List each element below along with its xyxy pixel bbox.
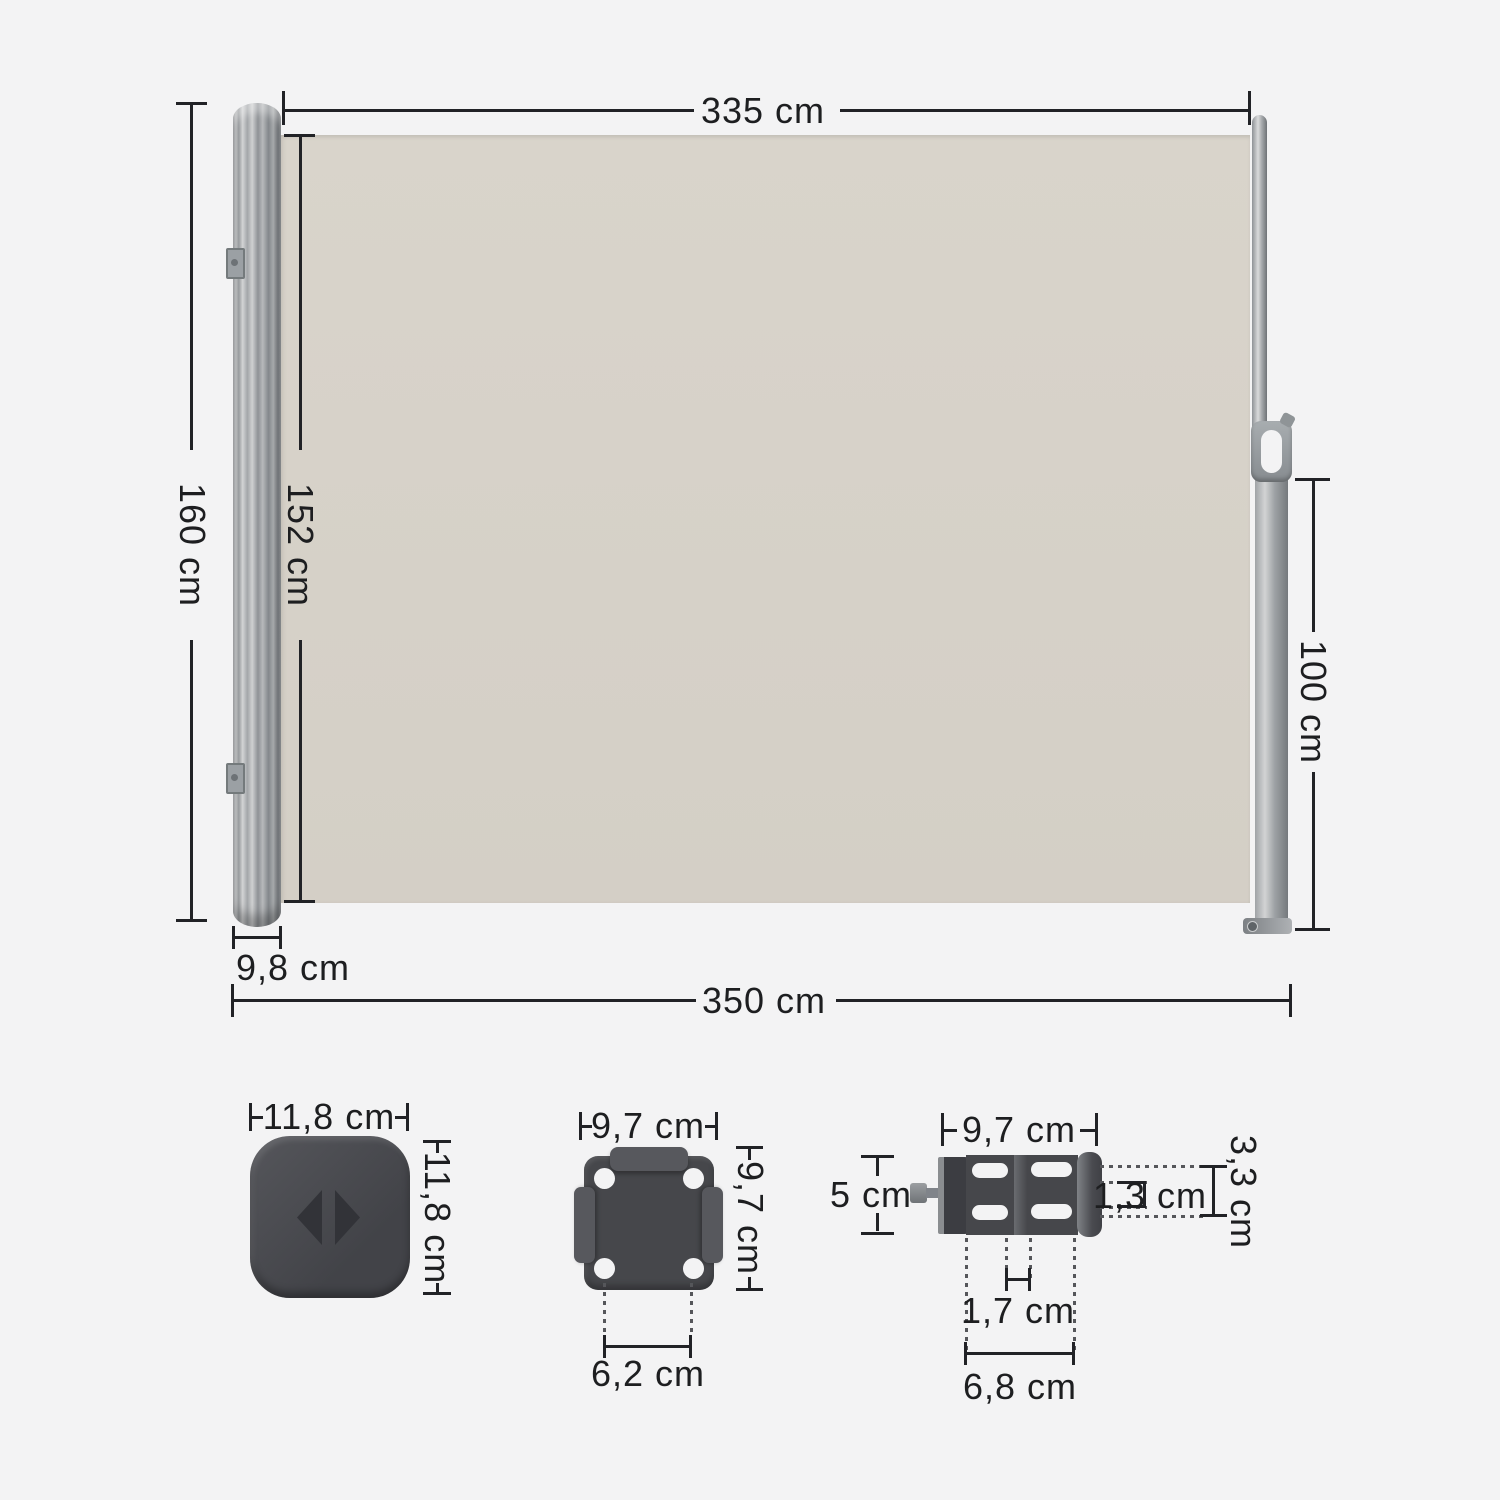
end-cap [250,1136,410,1298]
dim-bracket-width-label: 9,7 cm [962,1112,1076,1148]
dim-plate-width-label: 9,7 cm [591,1108,705,1144]
dim-hole-spacing-dotted-right [690,1283,693,1337]
dim-hole-spacing-line [604,1345,692,1348]
main-awning-diagram: 335 cm 160 cm 152 cm 100 cm 9,8 cm 350 c… [0,0,1500,1050]
dim-cassette-depth-tick-left [232,926,235,949]
dim-fabric-width-line-right [840,109,1250,112]
dim-outer-span-line [966,1352,1075,1355]
dim-bracket-width-tick-right [1095,1113,1098,1146]
foot-screw-icon [1247,921,1258,932]
dim-total-width-tick-right [1289,984,1292,1017]
dim-bracket-height-seg-bottom [876,1213,879,1231]
dim-total-width-tick-left [231,984,234,1017]
dim-fabric-height-line-top [299,136,302,450]
dim-fabric-height-label: 152 cm [282,483,318,607]
dim-bracket-width-seg-left [943,1129,957,1132]
clip-screw-icon [231,259,238,266]
dim-fabric-width-tick-left [282,91,285,125]
pull-pole-upper [1252,115,1267,427]
dim-pole-height-line-top [1312,480,1315,632]
bracket-divider [1014,1155,1033,1235]
dim-side-height-label: 3,3 cm [1225,1135,1261,1249]
dim-plate-height-seg-top [748,1149,751,1160]
dim-cassette-depth-label: 9,8 cm [236,950,350,986]
fabric-panel [281,135,1250,903]
cassette-housing [233,103,281,927]
dim-cap-width-label: 11,8 cm [263,1099,395,1135]
dim-plate-height-seg-bottom [748,1277,751,1288]
dim-hole-spacing-label: 6,2 cm [591,1356,705,1392]
end-cap-diagram: 11,8 cm 11,8 cm [0,1050,500,1500]
dim-lip-label: 1,3 cm [1093,1178,1207,1214]
dim-plate-height-label: 9,7 cm [732,1161,768,1275]
dim-fabric-width-tick-right [1248,91,1251,125]
dim-bracket-width-seg-right [1080,1129,1095,1132]
wall-plate-top-tab [610,1147,688,1171]
plate-hole-top-right [683,1168,704,1189]
bracket-slot-top-right [1031,1162,1072,1177]
dim-total-height-label: 160 cm [174,483,210,607]
pole-handle-slot [1261,430,1282,473]
dim-cap-width-tick-right [406,1103,409,1131]
dim-fabric-width-label: 335 cm [701,93,825,129]
dim-side-height-line [1212,1167,1215,1217]
dim-cap-width-seg-left [251,1116,263,1119]
bracket-slot-top-left [972,1163,1008,1178]
wall-plate-diagram: 9,7 cm 9,7 cm 6,2 cm [500,1050,830,1500]
wall-plate-right-tab [702,1187,723,1263]
plate-hole-bottom-right [683,1258,704,1279]
dim-bracket-height-label: 5 cm [830,1177,912,1213]
dim-inner-gap-label: 1,7 cm [961,1293,1075,1329]
dim-hole-spacing-dotted-left [603,1283,606,1337]
dim-plate-width-tick-right [715,1112,718,1140]
wall-clip-top [226,248,245,279]
dim-total-height-line-top [190,104,193,450]
wall-clip-bottom [226,763,245,794]
dim-outer-span-tick-right [1072,1342,1075,1365]
pull-pole-lower [1255,477,1288,922]
wall-plate-left-tab [574,1187,595,1263]
dim-cassette-depth-tick-right [279,926,282,949]
dim-plate-height-tick-bottom [736,1288,763,1291]
bracket-slot-bottom-right [1031,1204,1072,1219]
dim-fabric-height-line-bottom [299,640,302,902]
dim-total-height-line-bottom [190,640,193,921]
dim-pole-height-line-bottom [1312,772,1315,930]
screw-icon [910,1183,927,1203]
dim-fabric-height-tick-top [284,134,315,137]
dim-total-height-tick-top [176,102,207,105]
dim-total-width-line-left [232,999,696,1002]
bracket-left-wall [938,1157,967,1234]
dim-outer-span-label: 6,8 cm [963,1369,1077,1405]
dim-pole-height-tick-top [1295,478,1330,481]
dim-fabric-width-line-left [284,109,694,112]
dim-pole-height-label: 100 cm [1295,640,1331,764]
bracket-slot-bottom-left [972,1205,1008,1220]
dim-pole-height-tick-bottom [1295,928,1330,931]
dim-fabric-height-tick-bottom [284,900,315,903]
plate-hole-bottom-left [594,1258,615,1279]
dim-total-height-tick-bottom [176,919,207,922]
product-dimension-diagram: 335 cm 160 cm 152 cm 100 cm 9,8 cm 350 c… [0,0,1500,1500]
dim-total-width-label: 350 cm [702,983,826,1019]
dim-cassette-depth-line [233,936,281,939]
dim-outer-span-tick-left [964,1342,967,1365]
dim-side-height-dotted-top [1100,1165,1208,1168]
pole-bracket-diagram: 9,7 cm 5 cm 3,3 cm 1,3 cm 1,7 cm [830,1050,1500,1500]
dim-total-width-line-right [836,999,1292,1002]
dim-cap-height-tick-bottom [423,1292,451,1295]
dim-inner-gap-tick-left [1005,1268,1008,1291]
dim-bracket-height-tick-bottom [861,1232,894,1235]
dim-cap-height-label: 11,8 cm [419,1152,455,1284]
dim-inner-gap-tick-right [1028,1268,1031,1291]
clip-screw-icon [231,774,238,781]
plate-hole-top-left [594,1168,615,1189]
